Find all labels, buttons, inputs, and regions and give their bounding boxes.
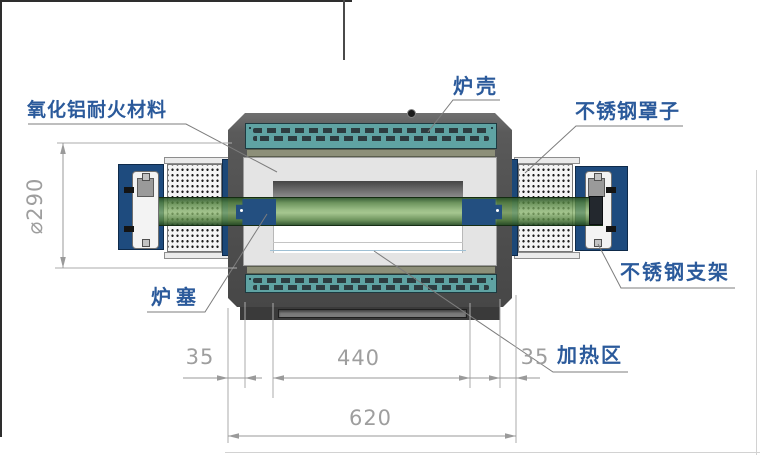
- label-heating-zone: 加热区: [557, 344, 623, 368]
- label-plug: 炉塞: [151, 286, 201, 310]
- dim-diameter-290: ⌀290: [23, 164, 45, 248]
- label-steel-bracket: 不锈钢支架: [620, 261, 730, 285]
- flange-screw-left-bottom: [142, 239, 150, 247]
- flange-screw-right-bottom: [594, 239, 602, 247]
- label-steel-cover: 不锈钢罩子: [575, 100, 680, 124]
- furnace-base-slot: [278, 309, 467, 318]
- dim-heating-440: 440: [330, 346, 387, 370]
- furnace-tube: [138, 197, 603, 226]
- cover-cap-right-top: [514, 157, 580, 164]
- vent-band-bottom: [245, 274, 497, 293]
- sheet-bottom-edge: [225, 452, 760, 453]
- chamber-line: [273, 242, 463, 243]
- clamp-bolt-left-top: [124, 187, 134, 193]
- furnace-technical-drawing: 氧化铝耐火材料 炉壳 不锈钢罩子 不锈钢支架 炉塞 加热区 ⌀290 35 44…: [0, 0, 760, 455]
- window-top-border: [0, 0, 352, 2]
- flange-screw-right-top: [594, 173, 602, 181]
- chamber-blue-line: [270, 250, 466, 251]
- sheet-right-edge: [756, 170, 757, 455]
- plug-dot-right: [496, 209, 499, 212]
- tube-end-cap: [589, 196, 603, 225]
- vent-band-top: [245, 123, 497, 149]
- insulation-strip-bottom: [247, 266, 495, 274]
- dim-right-35: 35: [519, 345, 551, 369]
- cover-cap-left-top: [164, 157, 231, 164]
- clamp-bolt-right-bottom: [606, 226, 616, 232]
- label-refractory: 氧化铝耐火材料: [27, 99, 167, 123]
- label-shell: 炉壳: [453, 75, 499, 99]
- dim-total-620: 620: [342, 406, 399, 430]
- flange-screw-left-top: [142, 173, 150, 181]
- clamp-bolt-left-bottom: [124, 226, 134, 232]
- window-divider-line: [343, 0, 345, 60]
- thermocouple-hole: [407, 109, 416, 118]
- dim-left-35: 35: [184, 345, 216, 369]
- cover-cap-left-bottom: [164, 252, 231, 259]
- window-left-border: [0, 0, 2, 437]
- heating-zone-block: [273, 181, 463, 198]
- insulation-strip-top: [247, 149, 495, 157]
- cover-cap-right-bottom: [514, 252, 580, 259]
- clamp-bolt-right-top: [606, 187, 616, 193]
- plug-dot-left: [240, 209, 243, 212]
